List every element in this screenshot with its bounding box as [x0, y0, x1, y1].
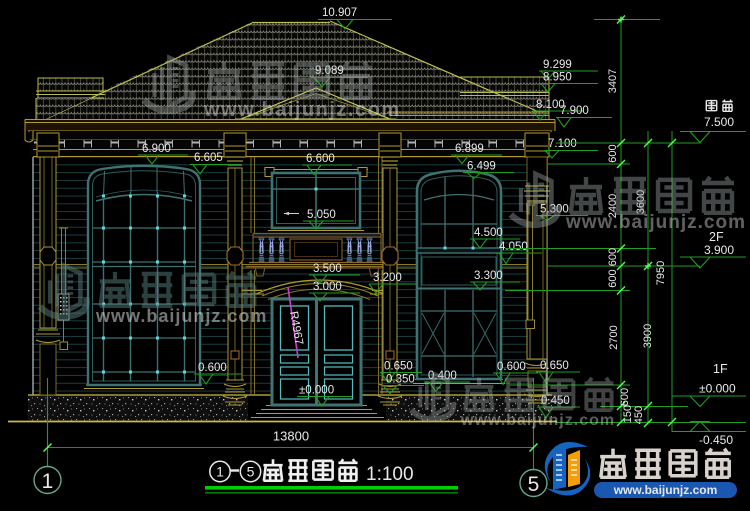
- svg-text:600: 600: [619, 388, 631, 406]
- svg-text:6.600: 6.600: [306, 153, 335, 165]
- svg-text:1:100: 1:100: [366, 464, 414, 485]
- svg-text:10.907: 10.907: [322, 7, 357, 19]
- svg-text:±0.000: ±0.000: [699, 382, 736, 396]
- svg-text:7.500: 7.500: [704, 115, 734, 129]
- svg-text:0.600: 0.600: [198, 362, 227, 374]
- svg-text:9.299: 9.299: [543, 59, 572, 71]
- svg-text:8.950: 8.950: [543, 72, 572, 84]
- svg-text:6.899: 6.899: [455, 143, 484, 155]
- svg-text:www.baijunjz.com: www.baijunjz.com: [613, 483, 718, 497]
- svg-text:0.350: 0.350: [386, 374, 415, 386]
- svg-text:6.499: 6.499: [467, 161, 496, 173]
- svg-text:600: 600: [607, 248, 619, 266]
- svg-text:450: 450: [633, 406, 645, 424]
- svg-text:3.900: 3.900: [704, 243, 734, 257]
- svg-text:0.650: 0.650: [384, 361, 413, 373]
- svg-text:±0.000: ±0.000: [299, 385, 334, 397]
- svg-text:4.050: 4.050: [499, 241, 528, 253]
- svg-text:-0.450: -0.450: [699, 433, 733, 447]
- svg-text:www.baijunjz.com: www.baijunjz.com: [565, 212, 746, 233]
- svg-text:600: 600: [607, 144, 619, 162]
- svg-text:3900: 3900: [642, 324, 654, 348]
- svg-text:1: 1: [216, 464, 224, 480]
- svg-text:7.100: 7.100: [548, 138, 577, 150]
- svg-text:3.500: 3.500: [313, 263, 342, 275]
- svg-text:www.baijunjz.com: www.baijunjz.com: [95, 306, 267, 326]
- svg-text:0.650: 0.650: [540, 360, 569, 372]
- svg-text:www.baijunjz.com: www.baijunjz.com: [460, 412, 615, 429]
- svg-text:5: 5: [247, 464, 255, 480]
- svg-text:7.900: 7.900: [560, 105, 589, 117]
- svg-text:3.300: 3.300: [474, 270, 503, 282]
- svg-text:5.050: 5.050: [307, 209, 336, 221]
- svg-text:1F: 1F: [713, 362, 728, 376]
- svg-text:4.500: 4.500: [474, 227, 503, 239]
- svg-text:6.900: 6.900: [142, 143, 171, 155]
- svg-text:1: 1: [42, 470, 54, 493]
- svg-text:www.baijunjz.com: www.baijunjz.com: [203, 99, 401, 121]
- svg-text:3.200: 3.200: [373, 272, 402, 284]
- svg-text:3407: 3407: [607, 69, 619, 93]
- svg-text:6.605: 6.605: [194, 152, 223, 164]
- svg-text:5: 5: [528, 473, 540, 496]
- svg-text:3.000: 3.000: [313, 281, 342, 293]
- svg-text:0.600: 0.600: [497, 361, 526, 373]
- svg-text:2700: 2700: [608, 325, 620, 349]
- svg-text:13800: 13800: [273, 429, 309, 444]
- svg-text:7950: 7950: [655, 261, 667, 285]
- svg-text:600: 600: [607, 269, 619, 287]
